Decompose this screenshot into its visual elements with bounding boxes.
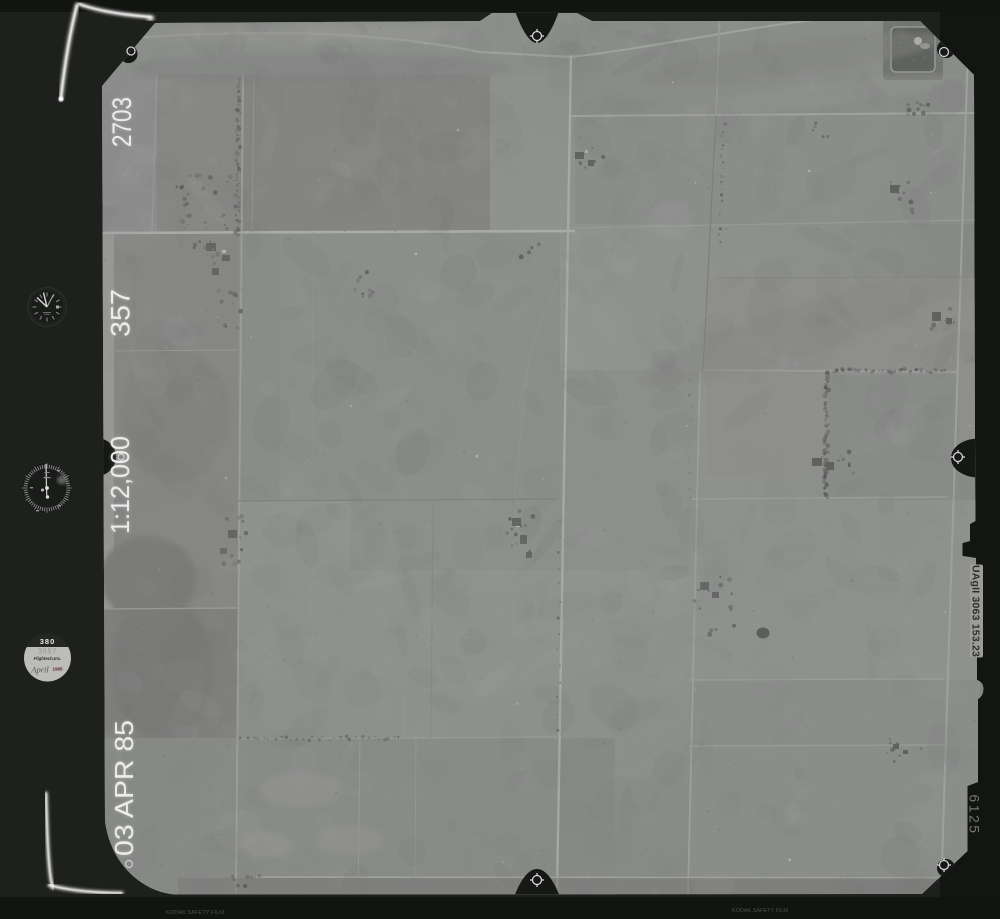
svg-text:1:12,000: 1:12,000 [105, 436, 135, 534]
svg-text:380: 380 [40, 637, 56, 646]
svg-text:KODAK SAFETY FILM: KODAK SAFETY FILM [166, 910, 224, 916]
svg-text:357: 357 [106, 289, 136, 337]
svg-text:03 APR 85: 03 APR 85 [109, 720, 139, 856]
svg-text:6125: 6125 [967, 794, 983, 835]
svg-text:UAgII 3063 153.23: UAgII 3063 153.23 [970, 565, 982, 657]
svg-text:1985: 1985 [52, 667, 63, 672]
svg-text:2703: 2703 [107, 97, 137, 147]
svg-text:KODAK SAFETY FILM: KODAK SAFETY FILM [732, 908, 788, 914]
svg-text:Flightech,Inc.: Flightech,Inc. [34, 656, 62, 661]
svg-text:3557: 3557 [38, 649, 57, 656]
svg-text:April: April [30, 665, 49, 675]
